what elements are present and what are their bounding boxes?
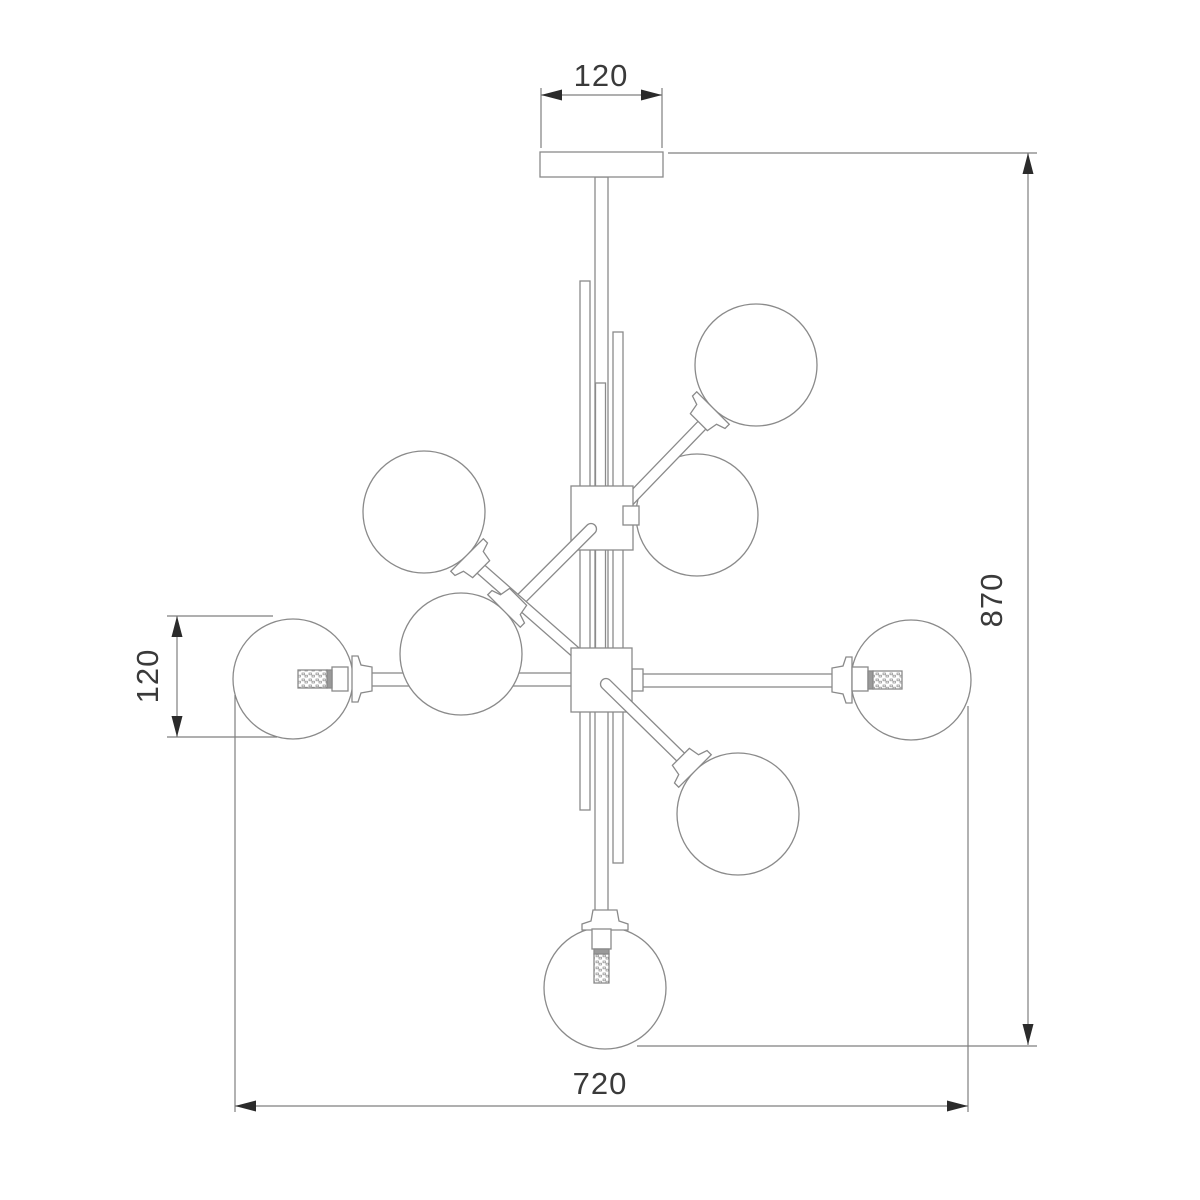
arrow-icon	[1023, 153, 1034, 174]
arm-right-socket	[632, 669, 643, 691]
bulb-far-right	[873, 671, 902, 689]
bulb-thread-collar-bottom	[594, 949, 609, 954]
bulb-thread-collar-far-right	[868, 671, 873, 689]
bulb-bottom	[594, 954, 609, 983]
fixture-body	[233, 152, 971, 1049]
arrow-icon	[641, 90, 662, 101]
arrow-icon	[172, 616, 183, 637]
technical-drawing-page: 120 120 870 720	[0, 0, 1200, 1200]
label-canopy-width: 120	[574, 58, 629, 93]
arm-right-horizontal	[640, 674, 837, 687]
ceiling-canopy	[540, 152, 663, 177]
bulb-far-left	[298, 670, 327, 688]
arrow-icon	[235, 1101, 256, 1112]
chandelier-drawing: 120 120 870 720	[0, 0, 1200, 1200]
globe-right-middle-socket	[623, 506, 639, 525]
label-overall-height: 870	[974, 573, 1009, 628]
label-globe-diameter: 120	[130, 649, 165, 704]
bulb-socket-far-right	[852, 667, 868, 691]
fitting-bottom	[582, 910, 628, 930]
arrow-icon	[172, 716, 183, 737]
bulb-socket-bottom	[592, 929, 611, 949]
arrow-icon	[947, 1101, 968, 1112]
label-overall-width: 720	[573, 1066, 628, 1101]
bulb-thread-collar-far-left	[327, 670, 332, 688]
arrow-icon	[1023, 1024, 1034, 1045]
decor-rod-right	[613, 332, 623, 863]
arrow-icon	[541, 90, 562, 101]
fitting-far-left	[352, 656, 372, 702]
bulb-socket-far-left	[332, 667, 348, 691]
fitting-far-right	[832, 657, 852, 703]
